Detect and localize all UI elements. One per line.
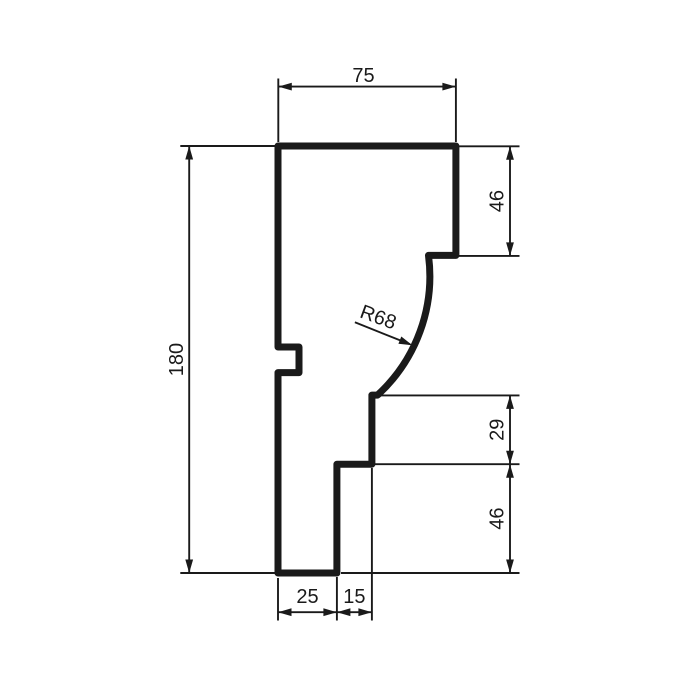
svg-text:46: 46 xyxy=(487,190,509,212)
svg-text:29: 29 xyxy=(487,419,509,441)
svg-text:75: 75 xyxy=(352,65,374,87)
svg-text:15: 15 xyxy=(343,586,365,608)
svg-text:46: 46 xyxy=(487,507,509,529)
svg-text:180: 180 xyxy=(166,343,188,376)
svg-text:25: 25 xyxy=(296,586,318,608)
